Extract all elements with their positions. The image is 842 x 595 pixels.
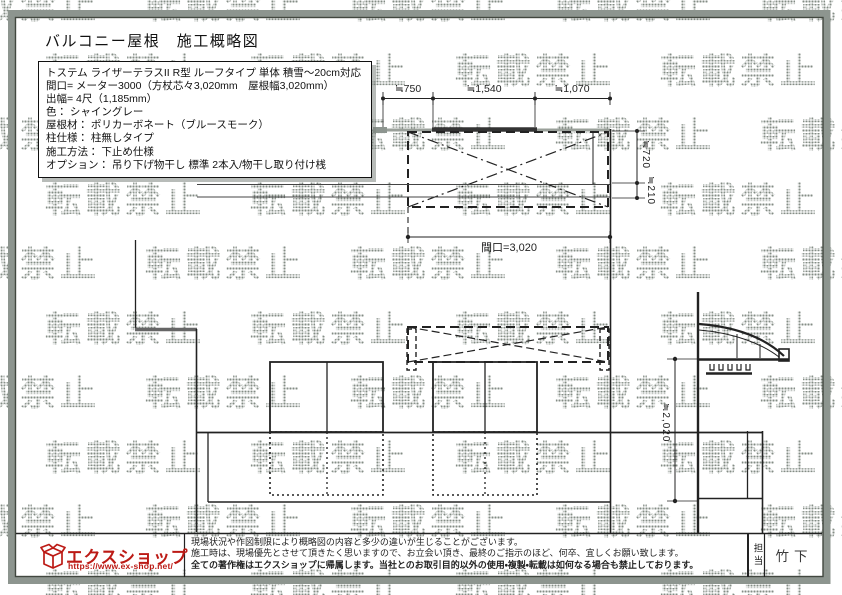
dim-label-210: ≒210 <box>645 176 656 212</box>
disclaimer-block: 現場状況や作図制限により概略図の内容と多少の違いが生じることがございます。 施工… <box>191 537 743 571</box>
spec-line: 施工方法： 下止め仕様 <box>46 146 364 159</box>
dim-label-1070: ≒1,070 <box>542 83 602 95</box>
dim-label-maguchi: 間口=3,020 <box>459 239 559 255</box>
spec-line: トステム ライザーテラスII R型 ルーフタイプ 単体 積雪～20cm対応 <box>46 67 364 80</box>
exshop-box-logo-icon <box>40 542 66 570</box>
side-view <box>667 292 789 533</box>
spec-box: トステム ライザーテラスII R型 ルーフタイプ 単体 積雪～20cm対応 間口… <box>38 61 372 178</box>
spec-line: 屋根材： ポリカーボネート（ブルースモーク） <box>46 119 364 132</box>
staff-name: 竹下 <box>766 534 822 576</box>
dim-label-750: ≒750 <box>383 83 433 95</box>
spec-line: オプション： 吊り下げ物干し 標準 2本入/物干し取り付け桟 <box>46 159 364 172</box>
spec-line: 柱仕様： 柱無しタイプ <box>46 132 364 145</box>
staff-label: 担当 <box>749 535 764 576</box>
disclaimer-line: 全ての著作権はエクスショップに帰属します。当社とのお取引目的以外の使用・複製・転… <box>191 560 743 571</box>
construction-diagram-page: 転載禁止転載禁止転載禁止転載禁止転載禁止転載禁止転載禁止転載禁止転載禁止転載禁止… <box>0 0 842 595</box>
dim-label-1540: ≒1,540 <box>454 83 514 95</box>
spec-line: 間口= メーター3000（方杖芯々3,020mm 屋根幅3,020mm） <box>46 80 364 93</box>
spec-line: 色： シャイングレー <box>46 106 364 119</box>
dim-label-2020: ≒2,020 <box>660 403 671 457</box>
disclaimer-line: 現場状況や作図制限により概略図の内容と多少の違いが生じることがございます。 <box>191 537 743 548</box>
disclaimer-line: 施工時は、現場優先とさせて頂きたく思いますので、お立会い頂き、最終のご指示のほど… <box>191 548 743 559</box>
page-title: バルコニー屋根 施工概略図 <box>45 30 259 51</box>
exshop-logo-url[interactable]: https://www.ex-shop.net/ <box>68 561 173 571</box>
front-view <box>135 240 762 532</box>
spec-line: 出幅= 4尺（1,185mm） <box>46 93 364 106</box>
